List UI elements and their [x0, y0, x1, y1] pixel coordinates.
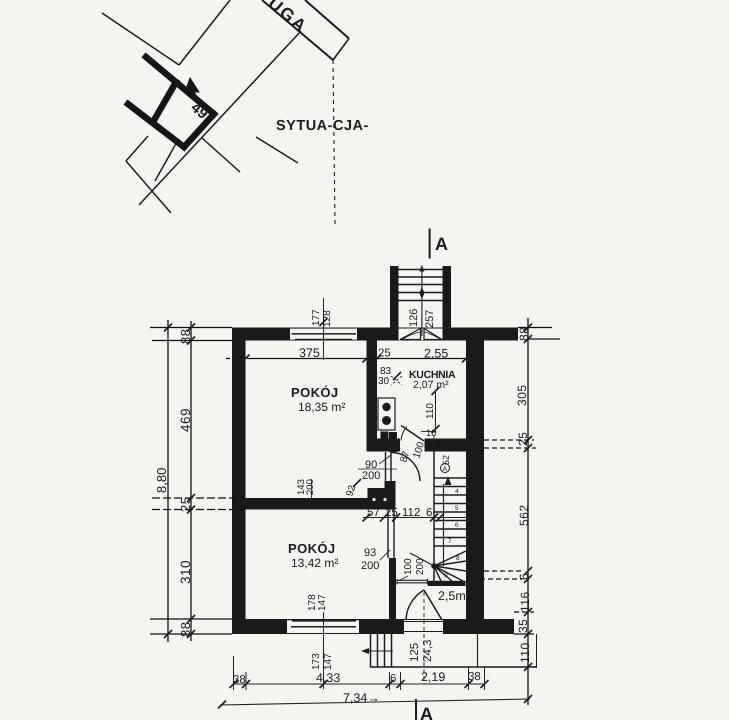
svg-text:469: 469: [178, 408, 193, 432]
svg-text:SYTUA-CJA-: SYTUA-CJA-: [276, 118, 369, 134]
svg-text:125: 125: [409, 643, 421, 662]
svg-text:8: 8: [456, 555, 460, 562]
svg-text:4,33: 4,33: [316, 671, 340, 685]
svg-text:147: 147: [317, 594, 328, 611]
svg-text:POKÓJ: POKÓJ: [288, 541, 336, 556]
svg-text:35: 35: [516, 619, 530, 633]
svg-text:110: 110: [425, 403, 436, 419]
svg-text:A: A: [443, 466, 448, 473]
svg-text:88: 88: [178, 622, 193, 637]
svg-text:92: 92: [344, 484, 358, 498]
svg-text:38: 38: [233, 674, 246, 686]
svg-text:257: 257: [424, 310, 436, 328]
svg-text:116: 116: [518, 591, 532, 612]
svg-text:8,80: 8,80: [154, 468, 169, 493]
svg-text:126: 126: [408, 309, 420, 327]
svg-text:A: A: [420, 704, 433, 720]
svg-text:375: 375: [299, 346, 320, 360]
svg-text:177: 177: [311, 309, 322, 326]
svg-text:7: 7: [448, 538, 452, 545]
svg-text:18,35 m²: 18,35 m²: [298, 400, 345, 414]
svg-text:200: 200: [415, 558, 426, 575]
svg-text:200: 200: [305, 479, 316, 495]
svg-text:UGA: UGA: [264, 0, 311, 37]
svg-text:6: 6: [455, 522, 459, 529]
svg-text:88: 88: [517, 327, 531, 341]
svg-text:52: 52: [441, 455, 451, 465]
svg-text:88: 88: [178, 329, 193, 344]
svg-text:25: 25: [378, 348, 391, 360]
svg-text:110: 110: [518, 642, 532, 663]
svg-text:POKÓJ: POKÓJ: [291, 385, 339, 400]
svg-text:2,19: 2,19: [421, 670, 445, 684]
svg-text:25: 25: [385, 507, 398, 519]
svg-text:A: A: [435, 234, 448, 254]
svg-text:2,55: 2,55: [424, 347, 448, 361]
svg-text:10: 10: [426, 428, 437, 439]
svg-text:2,5m²: 2,5m²: [438, 589, 470, 603]
svg-text:4: 4: [455, 488, 459, 495]
svg-text:173: 173: [311, 653, 322, 670]
svg-text:100: 100: [403, 558, 414, 575]
svg-text:147: 147: [323, 653, 334, 670]
svg-text:128: 128: [322, 310, 333, 327]
svg-text:200: 200: [361, 560, 379, 572]
svg-text:57: 57: [367, 507, 380, 519]
svg-text:30: 30: [378, 376, 390, 387]
svg-text:112: 112: [402, 507, 420, 519]
svg-text:7,34→: 7,34→: [343, 691, 380, 705]
svg-text:6: 6: [426, 507, 432, 519]
svg-text:305: 305: [515, 384, 529, 406]
svg-text:9: 9: [444, 572, 448, 579]
svg-text:2,07 m²: 2,07 m²: [413, 379, 449, 391]
svg-text:25: 25: [178, 497, 193, 512]
svg-text:6: 6: [390, 673, 396, 685]
svg-text:310: 310: [178, 560, 193, 584]
svg-text:5: 5: [455, 505, 459, 512]
svg-text:562: 562: [517, 504, 531, 526]
svg-text:13,42 m²: 13,42 m²: [291, 556, 338, 570]
svg-text:93: 93: [364, 547, 376, 559]
svg-text:6: 6: [517, 573, 531, 580]
svg-text:38: 38: [468, 671, 481, 683]
svg-text:25: 25: [516, 432, 530, 446]
svg-text:200: 200: [362, 470, 380, 482]
